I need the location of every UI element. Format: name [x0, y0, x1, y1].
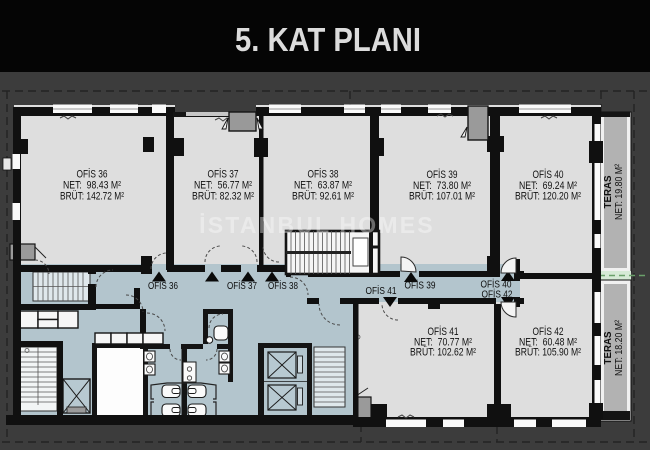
svg-text:OFİS 38: OFİS 38: [268, 279, 298, 292]
svg-text:BRÜT: 107.01 M²: BRÜT: 107.01 M²: [409, 191, 475, 203]
svg-text:NET: 18.20 M²: NET: 18.20 M²: [613, 320, 625, 376]
svg-text:BRÜT: 102.62 M²: BRÜT: 102.62 M²: [410, 347, 476, 359]
svg-text:OFİS 42: OFİS 42: [482, 288, 513, 301]
svg-text:OFİS 37: OFİS 37: [227, 279, 257, 292]
svg-text:OFİS 39: OFİS 39: [405, 279, 436, 292]
svg-text:OFİS 41: OFİS 41: [366, 284, 397, 297]
svg-text:OFİS 36: OFİS 36: [148, 279, 178, 292]
svg-text:BRÜT: 82.32 M²: BRÜT: 82.32 M²: [192, 191, 254, 203]
svg-text:İSTANBUL HOMES: İSTANBUL HOMES: [199, 212, 435, 238]
svg-text:NET: 19.80 M²: NET: 19.80 M²: [613, 164, 625, 220]
svg-text:BRÜT: 105.90 M²: BRÜT: 105.90 M²: [515, 347, 581, 359]
svg-text:BRÜT: 142.72 M²: BRÜT: 142.72 M²: [60, 191, 124, 203]
svg-text:BRÜT: 120.20 M²: BRÜT: 120.20 M²: [515, 191, 581, 203]
svg-text:5. KAT PLANI: 5. KAT PLANI: [235, 21, 421, 58]
svg-text:BRÜT: 92.61 M²: BRÜT: 92.61 M²: [292, 191, 354, 203]
